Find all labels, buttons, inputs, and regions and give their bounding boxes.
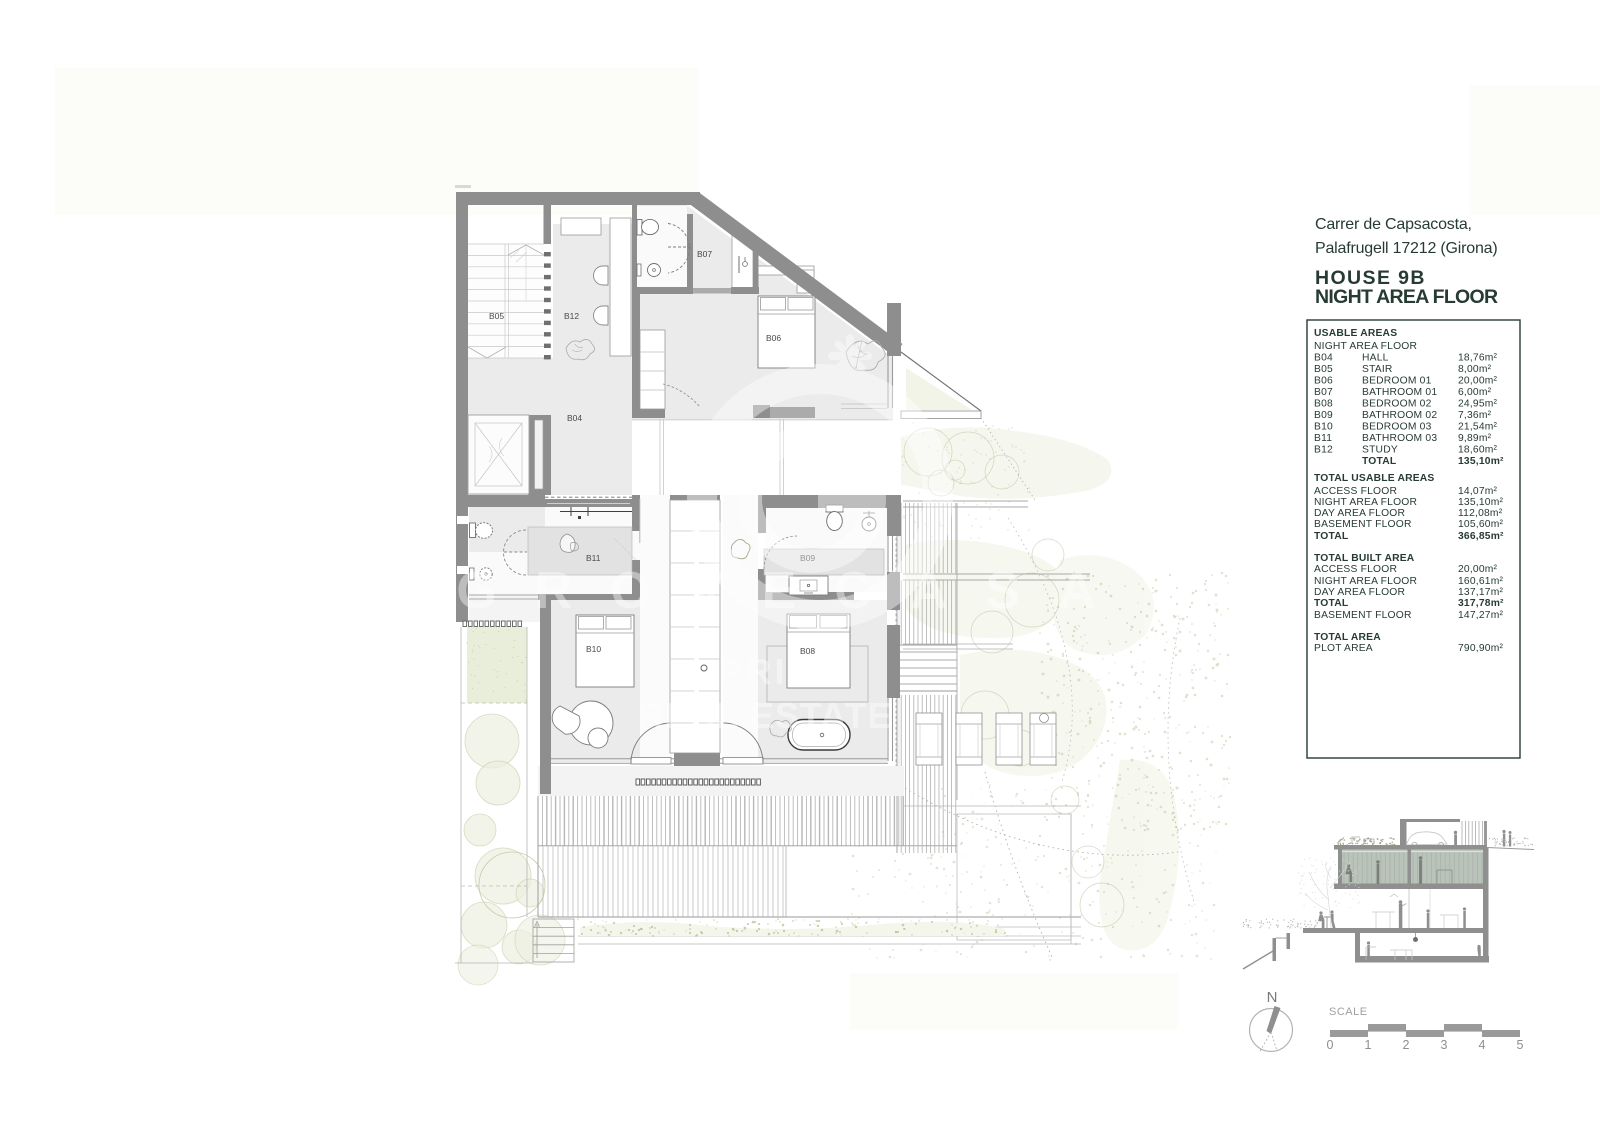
svg-text:317,78m²: 317,78m² — [1458, 598, 1504, 609]
svg-text:TOTAL USABLE AREAS: TOTAL USABLE AREAS — [1314, 473, 1435, 484]
svg-text:NIGHT AREA FLOOR: NIGHT AREA FLOOR — [1315, 286, 1498, 308]
svg-text:NIGHT AREA FLOOR: NIGHT AREA FLOOR — [1314, 341, 1417, 352]
svg-text:NIGHT AREA FLOOR: NIGHT AREA FLOOR — [1314, 497, 1417, 508]
svg-text:4: 4 — [1479, 1038, 1486, 1052]
svg-text:B04: B04 — [1314, 353, 1333, 364]
svg-text:PLOT AREA: PLOT AREA — [1314, 643, 1373, 654]
svg-text:B05: B05 — [1314, 364, 1333, 375]
svg-text:TOTAL AREA: TOTAL AREA — [1314, 632, 1381, 643]
svg-text:STAIR: STAIR — [1362, 364, 1393, 375]
svg-text:N: N — [1267, 989, 1278, 1006]
svg-text:B05: B05 — [489, 311, 504, 321]
svg-text:7,36m²: 7,36m² — [1458, 410, 1492, 421]
svg-text:ACCESS FLOOR: ACCESS FLOOR — [1314, 564, 1397, 575]
svg-text:14,07m²: 14,07m² — [1458, 486, 1498, 497]
svg-text:137,17m²: 137,17m² — [1458, 587, 1503, 598]
svg-text:ACCESS FLOOR: ACCESS FLOOR — [1314, 486, 1397, 497]
svg-text:BASEMENT FLOOR: BASEMENT FLOOR — [1314, 610, 1412, 621]
svg-text:Carrer de Capsacosta,: Carrer de Capsacosta, — [1315, 216, 1472, 233]
svg-text:DAY AREA FLOOR: DAY AREA FLOOR — [1314, 587, 1405, 598]
svg-text:BATHROOM 02: BATHROOM 02 — [1362, 410, 1437, 421]
svg-text:9,89m²: 9,89m² — [1458, 433, 1492, 444]
svg-text:DAY AREA FLOOR: DAY AREA FLOOR — [1314, 508, 1405, 519]
svg-text:18,76m²: 18,76m² — [1458, 353, 1498, 364]
svg-text:USABLE AREAS: USABLE AREAS — [1314, 328, 1397, 339]
svg-text:B07: B07 — [697, 249, 712, 259]
svg-text:3: 3 — [1441, 1038, 1448, 1052]
svg-text:BASEMENT FLOOR: BASEMENT FLOOR — [1314, 519, 1412, 530]
svg-text:1: 1 — [1365, 1038, 1372, 1052]
svg-text:REAL ESTATE: REAL ESTATE — [637, 695, 892, 736]
svg-text:135,10m²: 135,10m² — [1458, 456, 1504, 467]
svg-text:135,10m²: 135,10m² — [1458, 497, 1503, 508]
svg-text:B06: B06 — [766, 333, 781, 343]
svg-text:B07: B07 — [1314, 387, 1333, 398]
svg-text:2: 2 — [1403, 1038, 1410, 1052]
svg-text:6,00m²: 6,00m² — [1458, 387, 1492, 398]
svg-text:BEDROOM 01: BEDROOM 01 — [1362, 376, 1432, 387]
svg-text:TOTAL: TOTAL — [1314, 598, 1348, 609]
svg-text:BEDROOM 02: BEDROOM 02 — [1362, 399, 1432, 410]
svg-text:B11: B11 — [1314, 433, 1332, 444]
svg-text:B12: B12 — [1314, 445, 1333, 456]
svg-text:BATHROOM 01: BATHROOM 01 — [1362, 387, 1437, 398]
svg-text:TOTAL: TOTAL — [1314, 531, 1348, 542]
svg-text:790,90m²: 790,90m² — [1458, 643, 1503, 654]
svg-text:8,00m²: 8,00m² — [1458, 364, 1492, 375]
svg-text:20,00m²: 20,00m² — [1458, 564, 1498, 575]
svg-text:GROVECASA: GROVECASA — [456, 562, 1133, 620]
svg-text:112,08m²: 112,08m² — [1458, 508, 1503, 519]
svg-text:TOTAL: TOTAL — [1362, 456, 1396, 467]
svg-text:21,54m²: 21,54m² — [1458, 422, 1498, 433]
svg-text:105,60m²: 105,60m² — [1458, 519, 1503, 530]
svg-text:B10: B10 — [586, 644, 601, 654]
svg-text:TOTAL BUILT AREA: TOTAL BUILT AREA — [1314, 553, 1415, 564]
svg-text:B06: B06 — [1314, 376, 1333, 387]
svg-text:STUDY: STUDY — [1362, 445, 1398, 456]
svg-text:366,85m²: 366,85m² — [1458, 531, 1504, 542]
svg-text:B09: B09 — [1314, 410, 1333, 421]
svg-text:Palafrugell 17212 (Girona): Palafrugell 17212 (Girona) — [1315, 240, 1497, 257]
svg-text:B08: B08 — [1314, 399, 1333, 410]
svg-text:SCALE: SCALE — [1329, 1006, 1368, 1018]
svg-text:B10: B10 — [1314, 422, 1333, 433]
svg-text:HALL: HALL — [1362, 353, 1389, 364]
svg-text:B04: B04 — [567, 413, 582, 423]
svg-text:BATHROOM 03: BATHROOM 03 — [1362, 433, 1437, 444]
svg-text:0: 0 — [1327, 1038, 1334, 1052]
svg-text:160,61m²: 160,61m² — [1458, 576, 1503, 587]
svg-text:B12: B12 — [564, 311, 579, 321]
svg-text:PRIME: PRIME — [718, 651, 847, 692]
svg-text:24,95m²: 24,95m² — [1458, 399, 1498, 410]
svg-text:18,60m²: 18,60m² — [1458, 445, 1498, 456]
svg-text:NIGHT AREA FLOOR: NIGHT AREA FLOOR — [1314, 576, 1417, 587]
svg-text:147,27m²: 147,27m² — [1458, 610, 1503, 621]
svg-text:BEDROOM 03: BEDROOM 03 — [1362, 422, 1432, 433]
svg-text:5: 5 — [1517, 1038, 1524, 1052]
svg-text:20,00m²: 20,00m² — [1458, 376, 1498, 387]
